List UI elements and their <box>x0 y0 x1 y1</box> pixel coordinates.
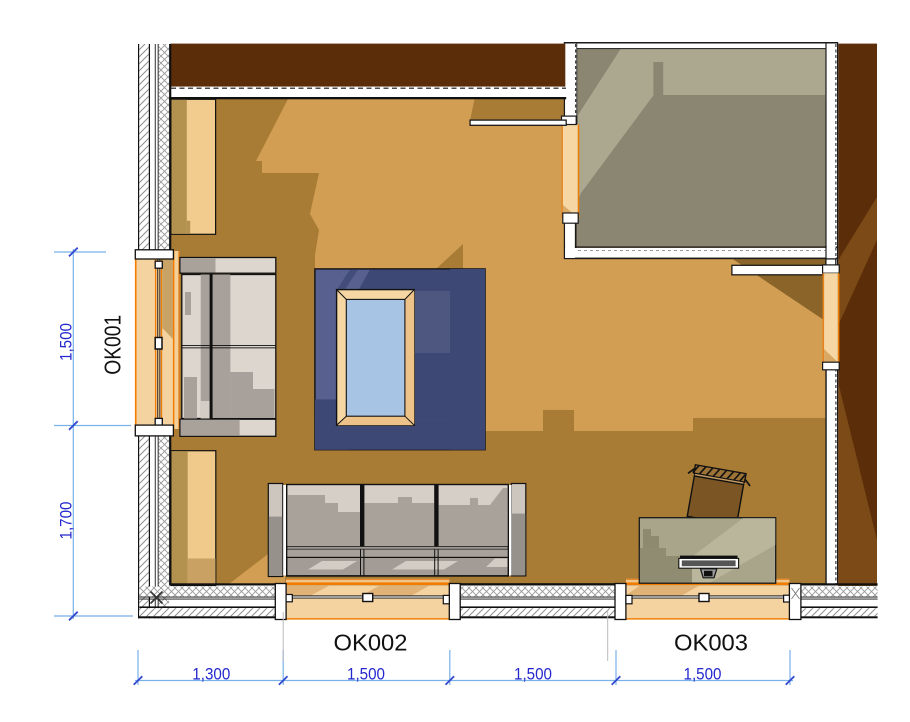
svg-text:1,300: 1,300 <box>192 665 230 684</box>
svg-text:OK001: OK001 <box>100 315 126 375</box>
svg-text:1,500: 1,500 <box>514 665 552 684</box>
svg-text:OK002: OK002 <box>334 630 408 656</box>
svg-text:1,500: 1,500 <box>56 323 75 361</box>
svg-text:1,500: 1,500 <box>684 665 722 684</box>
svg-text:1,700: 1,700 <box>56 502 75 540</box>
svg-text:1,500: 1,500 <box>347 665 385 684</box>
svg-text:OK003: OK003 <box>674 630 748 656</box>
